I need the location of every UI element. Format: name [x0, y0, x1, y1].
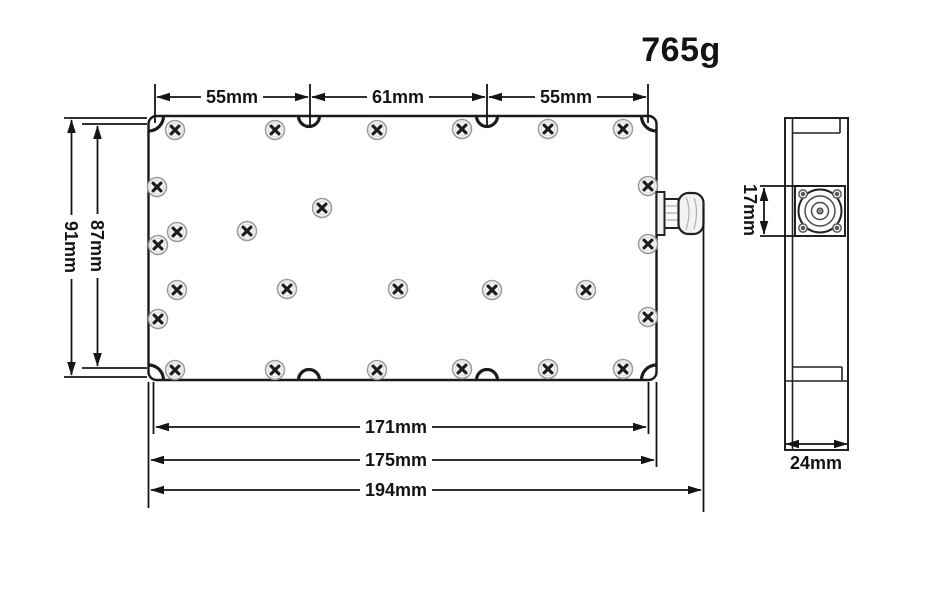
- screw-icon: [614, 120, 633, 139]
- dim-label-connector-height: 17mm: [740, 178, 760, 242]
- screw-icon: [266, 121, 285, 140]
- dim-label-left-outer: 91mm: [61, 215, 81, 279]
- screw-icon: [639, 235, 658, 254]
- screw-icon: [539, 360, 558, 379]
- side-view-body: [785, 118, 848, 450]
- screw-icon: [368, 361, 387, 380]
- screw-icon: [148, 178, 167, 197]
- dim-label-bottom-inner: 171mm: [360, 417, 432, 437]
- screw-icon: [614, 360, 633, 379]
- rf-connector-top-view: [657, 192, 704, 235]
- dim-label-top-center: 61mm: [367, 87, 429, 107]
- screw-icon: [166, 121, 185, 140]
- dim-label-top-right: 55mm: [535, 87, 597, 107]
- screw-icon: [266, 361, 285, 380]
- screw-icon: [639, 308, 658, 327]
- top-view-plate: [134, 101, 704, 395]
- drawing-linework: [0, 0, 929, 605]
- dim-label-left-inner: 87mm: [87, 214, 107, 278]
- screw-icon: [168, 223, 187, 242]
- screw-icon: [539, 120, 558, 139]
- dim-label-bottom-overall: 194mm: [360, 480, 432, 500]
- screw-icon: [453, 120, 472, 139]
- screw-icon: [453, 360, 472, 379]
- screw-icon: [168, 281, 187, 300]
- screw-icon: [368, 121, 387, 140]
- weight-label: 765g: [641, 33, 721, 67]
- screw-icon: [639, 177, 658, 196]
- connector-face: [795, 186, 845, 236]
- dim-label-bottom-body: 175mm: [360, 450, 432, 470]
- dim-label-depth: 24mm: [785, 453, 847, 473]
- screw-icon: [389, 280, 408, 299]
- screw-icon: [149, 310, 168, 329]
- screw-icon: [483, 281, 502, 300]
- dim-label-top-left: 55mm: [201, 87, 263, 107]
- technical-drawing-canvas: 765g 55mm 61mm 55mm 91mm 87mm 171mm 175m…: [0, 0, 929, 605]
- screw-icon: [313, 199, 332, 218]
- screw-icon: [149, 236, 168, 255]
- screw-icon: [577, 281, 596, 300]
- screw-icon: [278, 280, 297, 299]
- screw-icon: [238, 222, 257, 241]
- screw-icon: [166, 361, 185, 380]
